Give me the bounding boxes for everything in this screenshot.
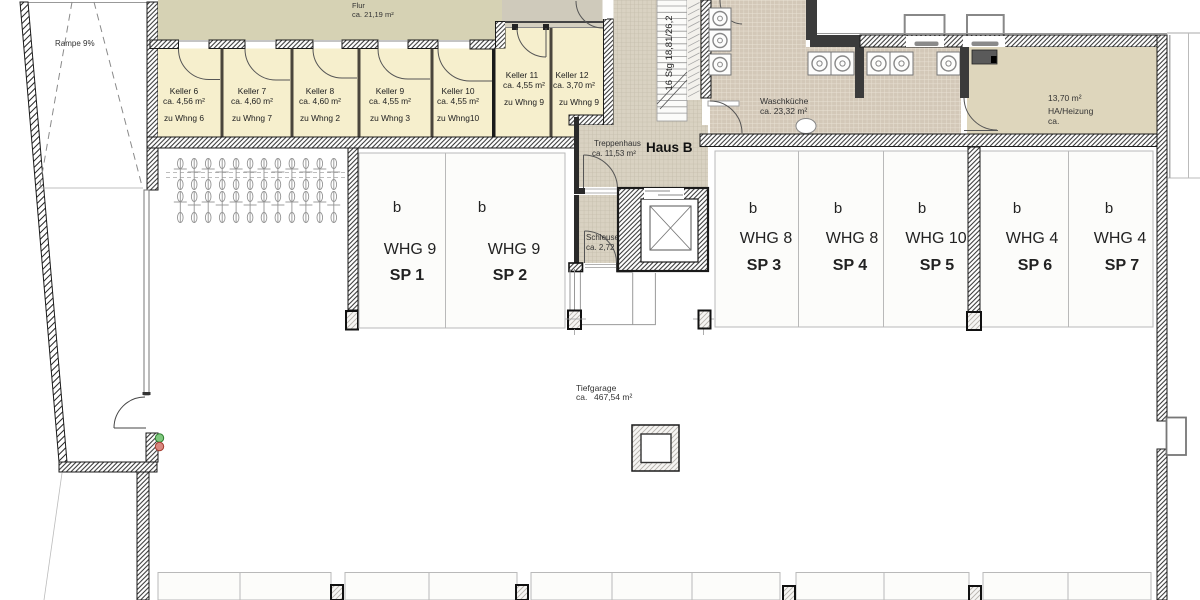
svg-text:SP 1: SP 1 xyxy=(390,267,425,284)
svg-text:WHG 8: WHG 8 xyxy=(826,230,879,247)
svg-text:467,54 m²: 467,54 m² xyxy=(594,392,632,402)
svg-text:Waschküche: Waschküche xyxy=(760,96,809,106)
svg-text:SP 5: SP 5 xyxy=(920,257,955,274)
svg-text:SP 2: SP 2 xyxy=(493,267,528,284)
svg-text:b: b xyxy=(1105,200,1113,217)
svg-text:b: b xyxy=(393,199,401,216)
svg-text:ca. 11,53 m²: ca. 11,53 m² xyxy=(592,149,636,158)
svg-text:Rampe 9%: Rampe 9% xyxy=(55,39,95,48)
svg-text:b: b xyxy=(749,200,757,217)
svg-text:zu Whng10: zu Whng10 xyxy=(437,113,480,123)
svg-text:ca. 4,60 m²: ca. 4,60 m² xyxy=(299,96,341,106)
svg-text:b: b xyxy=(918,200,926,217)
svg-text:ca. 4,56 m²: ca. 4,56 m² xyxy=(163,96,205,106)
svg-text:SP 4: SP 4 xyxy=(833,257,868,274)
svg-text:SP 3: SP 3 xyxy=(747,257,782,274)
svg-text:Keller 12: Keller 12 xyxy=(555,70,588,80)
svg-text:b: b xyxy=(834,200,842,217)
svg-text:b: b xyxy=(478,199,486,216)
svg-text:zu Whng 9: zu Whng 9 xyxy=(559,97,599,107)
svg-text:16 Stg 18,81/26,2: 16 Stg 18,81/26,2 xyxy=(664,15,675,90)
svg-text:Keller 8: Keller 8 xyxy=(306,86,335,96)
svg-text:Keller 6: Keller 6 xyxy=(170,86,199,96)
svg-text:Schleuse: Schleuse xyxy=(586,233,619,242)
svg-text:ca. 4,55 m²: ca. 4,55 m² xyxy=(437,96,479,106)
svg-text:Treppenhaus: Treppenhaus xyxy=(594,139,641,148)
svg-text:WHG 4: WHG 4 xyxy=(1094,230,1147,247)
svg-text:SP 6: SP 6 xyxy=(1018,257,1053,274)
svg-text:HA/Heizung: HA/Heizung xyxy=(1048,106,1094,116)
svg-text:Flur: Flur xyxy=(352,1,365,10)
svg-text:zu Whng 3: zu Whng 3 xyxy=(370,113,410,123)
svg-text:ca. 21,19 m²: ca. 21,19 m² xyxy=(352,10,394,19)
svg-text:Keller 11: Keller 11 xyxy=(506,70,539,80)
svg-text:ca.: ca. xyxy=(576,392,587,402)
svg-text:13,70 m²: 13,70 m² xyxy=(1048,93,1082,103)
svg-text:zu Whng 9: zu Whng 9 xyxy=(504,97,544,107)
svg-text:WHG 9: WHG 9 xyxy=(488,241,541,258)
svg-text:ca. 23,32 m²: ca. 23,32 m² xyxy=(760,106,807,116)
svg-text:ca. 4,60 m²: ca. 4,60 m² xyxy=(231,96,273,106)
svg-text:ca. 3,70 m²: ca. 3,70 m² xyxy=(553,80,595,90)
svg-text:WHG 4: WHG 4 xyxy=(1006,230,1059,247)
svg-text:Keller 10: Keller 10 xyxy=(441,86,474,96)
svg-text:SP 7: SP 7 xyxy=(1105,257,1140,274)
svg-text:ca. 4,55 m²: ca. 4,55 m² xyxy=(503,80,545,90)
svg-text:WHG 10: WHG 10 xyxy=(905,230,966,247)
svg-text:WHG 9: WHG 9 xyxy=(384,241,437,258)
svg-text:zu Whng 6: zu Whng 6 xyxy=(164,113,204,123)
svg-text:Keller 9: Keller 9 xyxy=(376,86,405,96)
svg-text:ca.: ca. xyxy=(1048,116,1059,126)
svg-text:b: b xyxy=(1013,200,1021,217)
svg-text:WHG 8: WHG 8 xyxy=(740,230,793,247)
svg-text:Keller 7: Keller 7 xyxy=(238,86,267,96)
svg-text:Haus B: Haus B xyxy=(646,140,693,155)
svg-text:zu Whng 2: zu Whng 2 xyxy=(300,113,340,123)
svg-text:ca. 4,55 m²: ca. 4,55 m² xyxy=(369,96,411,106)
svg-text:zu Whng 7: zu Whng 7 xyxy=(232,113,272,123)
